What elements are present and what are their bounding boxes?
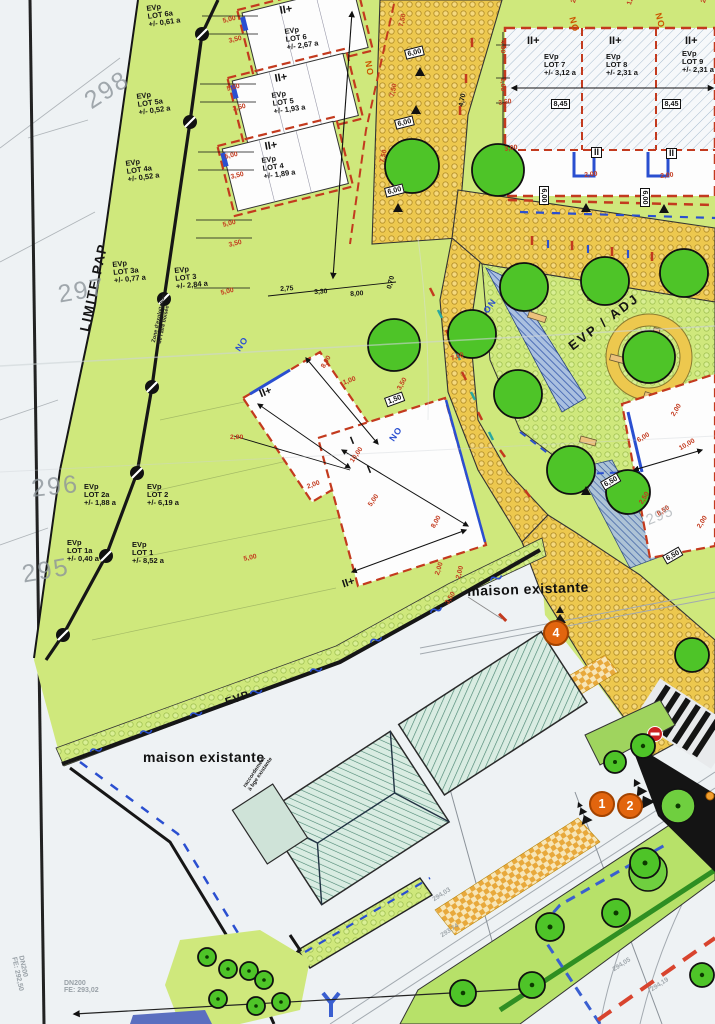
dimension-red-31: 2,00: [230, 434, 243, 441]
route-marker-1: 1: [589, 791, 615, 817]
storey-boxed-label-0: II: [591, 147, 602, 158]
dimension-red-19: 2,00: [584, 171, 598, 179]
dimension-boxed-6: 6,00: [640, 188, 650, 207]
dimension-black-1: 3,30: [314, 288, 328, 296]
lot-label-area: +/- 6,19 a: [147, 499, 179, 507]
lot-label-lot-5a: EVpLOT 5a+/- 0,52 a: [136, 89, 171, 117]
lot-label-lot-5: EVpLOT 5+/- 1,93 a: [271, 88, 306, 116]
lot-label-area: +/- 1,88 a: [84, 499, 116, 507]
dimension-boxed-5: 6,00: [539, 186, 549, 205]
dimension-boxed-4: 8,45: [662, 99, 681, 109]
storey-label-3: II+: [527, 36, 540, 48]
lot-label-lot-3: EVpLOT 3+/- 2,84 a: [174, 264, 208, 291]
lot-label-area: +/- 8,52 a: [132, 557, 164, 565]
lot-label-lot-4: EVpLOT 4+/- 1,89 a: [261, 153, 296, 181]
lot-label-lot-1a: EVpLOT 1a+/- 0,40 a: [67, 539, 99, 563]
lot-label-lot-3a: EVpLOT 3a+/- 0,77 a: [112, 258, 146, 285]
lot-label-lot-4a: EVpLOT 4a+/- 0,52 a: [125, 156, 160, 184]
lot-label-area: +/- 2,31 a: [606, 69, 638, 77]
orientation-red-0: NO: [363, 60, 375, 77]
pipe-label-2-line1: DN200: [64, 980, 99, 987]
storey-label-2: II+: [264, 140, 278, 154]
site-plan-drawing: [0, 0, 715, 1024]
dimension-black-2: 8,00: [350, 290, 364, 298]
site-plan-canvas: LIMITE PAP EVP / ADJ EVP maison existant…: [0, 0, 715, 1024]
lot-label-lot-2a: EVpLOT 2a+/- 1,88 a: [84, 483, 116, 507]
storey-label-5: II+: [685, 36, 698, 48]
lot-label-lot-1: EVpLOT 1+/- 8,52 a: [132, 541, 164, 565]
route-marker-2: 2: [617, 793, 643, 819]
lot-label-lot-6: EVpLOT 6+/- 2,67 a: [284, 24, 319, 52]
lot-label-lot-8: EVpLOT 8+/- 2,31 a: [606, 53, 638, 77]
storey-label-4: II+: [609, 36, 622, 48]
storey-label-0: II+: [279, 4, 293, 18]
dimension-black-0: 2,75: [280, 285, 294, 293]
lot-label-lot-2: EVpLOT 2+/- 6,19 a: [147, 483, 179, 507]
maison-existante-label-2: maison existante: [143, 750, 265, 765]
lot-label-area: +/- 3,12 a: [544, 69, 576, 77]
storey-boxed-label-1: II: [666, 148, 677, 159]
lot-label-area: +/- 0,40 a: [67, 555, 99, 563]
dimension-red-20: 2,00: [660, 172, 674, 180]
lot-label-lot-6a: EVpLOT 6a+/- 0,61 a: [146, 1, 181, 29]
storey-label-1: II+: [274, 72, 288, 86]
lot-label-area: +/- 2,31 a: [682, 66, 714, 74]
dimension-boxed-3: 8,45: [551, 99, 570, 109]
dimension-red-15: 4,00: [499, 40, 506, 53]
lot-label-lot-9: EVpLOT 9+/- 2,31 a: [682, 50, 714, 74]
route-marker-4: 4: [543, 620, 569, 646]
pipe-label-2: DN200 FE: 293,02: [64, 980, 99, 995]
dimension-red-16: 2,00: [499, 78, 506, 91]
contour-label-2: 296: [30, 471, 80, 502]
pipe-label-2-line2: FE: 293,02: [64, 987, 99, 994]
lot-label-lot-7: EVpLOT 7+/- 3,12 a: [544, 53, 576, 77]
